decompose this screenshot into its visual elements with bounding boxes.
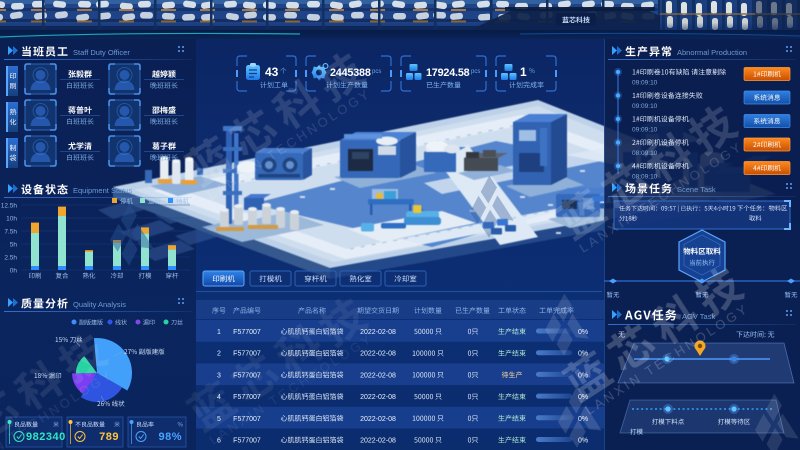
- svg-text:0%: 0%: [578, 438, 588, 445]
- svg-text:F577007: F577007: [233, 438, 261, 445]
- svg-text:08:09:10: 08:09:10: [632, 174, 658, 181]
- svg-text:2022-02-08: 2022-02-08: [360, 416, 396, 423]
- svg-text:0%: 0%: [578, 394, 588, 401]
- svg-text:AGV Task: AGV Task: [682, 312, 715, 321]
- svg-text:F577007: F577007: [233, 372, 261, 379]
- svg-text:0h: 0h: [10, 268, 18, 275]
- svg-text:0%: 0%: [578, 416, 588, 423]
- svg-text:1: 1: [520, 65, 527, 79]
- svg-text:Equipment Status: Equipment Status: [73, 186, 132, 195]
- svg-text:09:09:10: 09:09:10: [632, 103, 658, 110]
- svg-text:2022-02-08: 2022-02-08: [360, 351, 396, 358]
- svg-text:Scene Task: Scene Task: [677, 185, 716, 194]
- svg-text:2022-02-08: 2022-02-08: [360, 438, 396, 445]
- svg-text:2022-02-08: 2022-02-08: [360, 394, 396, 401]
- svg-text:Staff Duty Officer: Staff Duty Officer: [73, 48, 130, 57]
- svg-text:pcs: pcs: [471, 69, 480, 75]
- svg-text:F577007: F577007: [233, 329, 261, 336]
- svg-text:982340: 982340: [26, 431, 66, 443]
- svg-text:0%: 0%: [578, 351, 588, 358]
- svg-text:10h: 10h: [6, 216, 17, 223]
- svg-text:09:09:10: 09:09:10: [632, 127, 658, 134]
- svg-text:3: 3: [217, 372, 221, 379]
- svg-text:pcs: pcs: [372, 69, 381, 75]
- svg-text:2: 2: [217, 351, 221, 358]
- svg-text:7.5h: 7.5h: [4, 229, 17, 236]
- svg-text:6: 6: [217, 438, 221, 445]
- svg-text:Quality Analysis: Quality Analysis: [73, 300, 126, 309]
- svg-text:Abnormal Production: Abnormal Production: [677, 48, 747, 57]
- svg-text:09:09:10: 09:09:10: [632, 80, 658, 87]
- svg-text:2022-02-08: 2022-02-08: [360, 329, 396, 336]
- svg-text:F577007: F577007: [233, 416, 261, 423]
- svg-text:0%: 0%: [578, 372, 588, 379]
- svg-text:0%: 0%: [578, 329, 588, 336]
- svg-text:12.5h: 12.5h: [1, 203, 18, 210]
- svg-text:98%: 98%: [158, 431, 182, 443]
- svg-text:43: 43: [265, 65, 279, 79]
- svg-text:08:09:10: 08:09:10: [632, 150, 658, 157]
- svg-text:2.5h: 2.5h: [4, 255, 17, 262]
- svg-text:F577007: F577007: [233, 394, 261, 401]
- svg-text:1: 1: [217, 329, 221, 336]
- svg-text:5: 5: [217, 416, 221, 423]
- svg-text:2022-02-08: 2022-02-08: [360, 372, 396, 379]
- svg-text:17924.58: 17924.58: [426, 67, 470, 79]
- svg-text:4: 4: [217, 394, 221, 401]
- svg-text:789: 789: [99, 431, 119, 443]
- svg-text:5h: 5h: [10, 242, 18, 249]
- svg-text:2445388: 2445388: [330, 67, 371, 79]
- svg-text:F577007: F577007: [233, 351, 261, 358]
